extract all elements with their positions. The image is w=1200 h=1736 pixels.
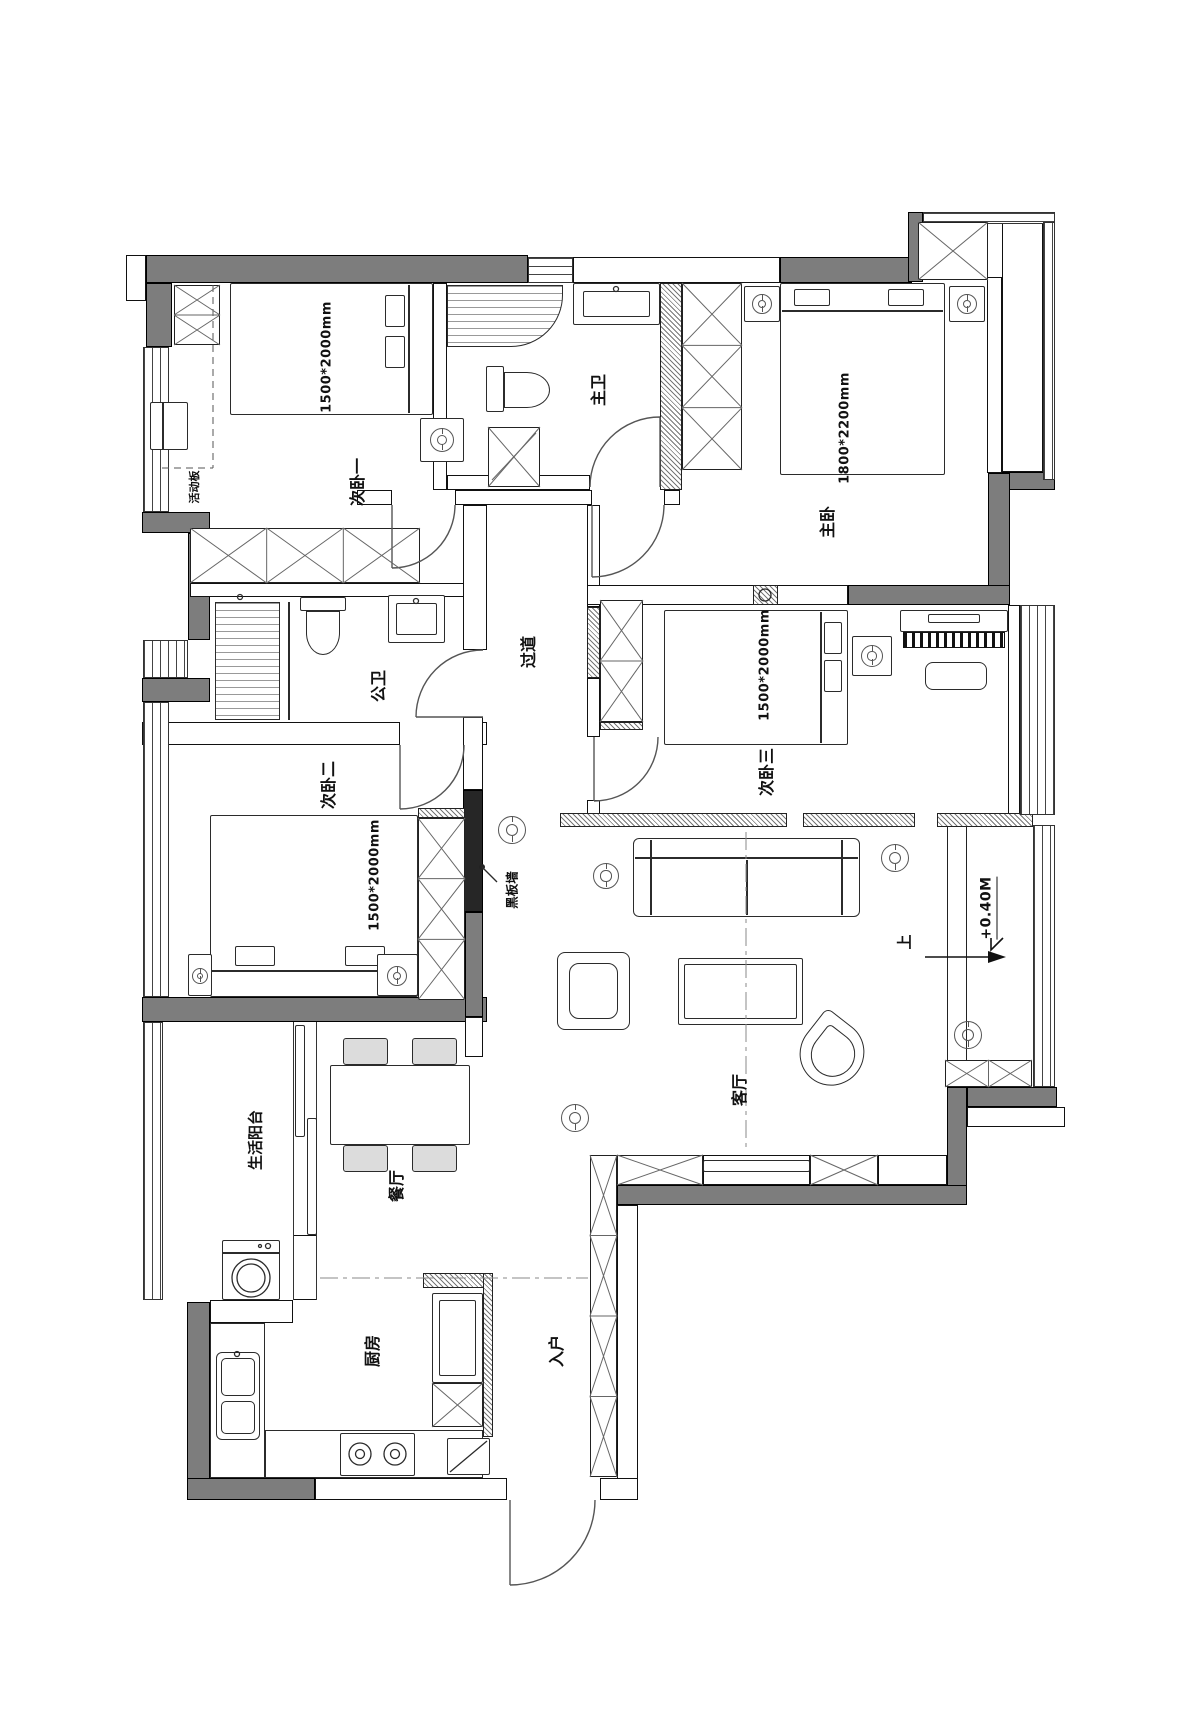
lamp-icon — [387, 966, 407, 986]
shower-area — [215, 602, 280, 720]
wall-segment — [967, 1087, 1057, 1107]
storage-cabinet — [918, 222, 988, 280]
wall-segment — [465, 912, 483, 1017]
pillow — [794, 289, 830, 306]
wall-segment — [210, 1300, 293, 1323]
room-label-public-bathroom: 公卫 — [365, 670, 389, 702]
sofa-arm — [650, 840, 652, 915]
bed-dimension-bedroom1: 1500*2000mm — [320, 301, 335, 413]
wall-segment — [1008, 605, 1020, 815]
room-label-entry: 入户 — [543, 1335, 567, 1367]
wall-segment — [587, 678, 600, 737]
wall-hatched — [660, 283, 682, 490]
window — [143, 640, 188, 678]
wall-segment — [146, 255, 528, 283]
dining-chair — [412, 1038, 457, 1065]
dining-chair — [412, 1145, 457, 1172]
room-label-bedroom3: 次卧三 — [753, 748, 777, 796]
balcony-strip — [1002, 222, 1043, 472]
leader-line — [482, 867, 497, 882]
wall-segment — [987, 277, 1002, 473]
piano-keyboard — [903, 632, 1005, 648]
wardrobe-cabinet — [418, 818, 465, 1000]
storage-cabinet — [945, 1060, 1032, 1087]
shower-glass — [288, 602, 290, 720]
entry-door-swing-arc — [510, 1500, 595, 1585]
wall-segment — [455, 490, 592, 505]
lamp-icon — [192, 968, 208, 984]
wall-hatched — [560, 813, 787, 827]
wall-segment — [142, 678, 210, 702]
bed-dimension-bedroom3: 1500*2000mm — [758, 609, 773, 721]
pillow — [235, 946, 275, 966]
sink-bowl — [221, 1401, 255, 1434]
window — [1033, 825, 1055, 1087]
wall-hatched — [483, 1273, 493, 1437]
wall-hatched — [418, 808, 465, 818]
bed-headboard — [408, 285, 410, 413]
lamp-icon — [957, 294, 977, 314]
pillow — [888, 289, 924, 306]
toilet-tank — [300, 597, 346, 611]
room-label-service-balcony: 生活阳台 — [245, 1110, 266, 1170]
wall-segment — [142, 722, 400, 745]
pillow — [385, 336, 405, 368]
blackboard-wall — [463, 790, 483, 912]
washer-panel — [223, 1252, 279, 1254]
wall-hatched — [423, 1273, 492, 1288]
door-swing-arc — [400, 745, 464, 809]
wall-hatched — [587, 607, 600, 678]
sofa-back — [635, 857, 858, 859]
base-cabinet — [447, 1438, 490, 1475]
door-swing-arc — [594, 737, 658, 801]
tv-cabinet — [617, 1155, 703, 1185]
ceiling-lamp-icon — [498, 816, 526, 844]
annotation-floor-elevation: +0.40M — [979, 876, 998, 939]
floor-plan-canvas: 次卧一 1500*2000mm 主卫 主卧 1800*2200mm 过道 公卫 … — [0, 0, 1200, 1736]
plumbing-shaft — [488, 427, 540, 487]
annotation-stair-up: 上 — [894, 934, 915, 949]
sink-bowl — [221, 1358, 255, 1396]
shoe-cabinet — [590, 1155, 617, 1477]
wall-segment — [617, 1185, 967, 1205]
wardrobe-cabinet — [682, 283, 742, 470]
sink-basin — [583, 291, 650, 317]
wall-hatched — [803, 813, 915, 827]
dining-chair — [343, 1038, 388, 1065]
bed-dimension-bedroom2: 1500*2000mm — [368, 819, 383, 931]
dining-chair — [343, 1145, 388, 1172]
ceiling-lamp-icon — [954, 1021, 982, 1049]
floor-lamp-icon — [593, 863, 619, 889]
washing-machine — [222, 1240, 280, 1300]
sofa-cushion-divide — [746, 860, 748, 915]
wall-segment — [573, 257, 780, 283]
wall-segment — [465, 1017, 483, 1057]
wall-segment — [463, 717, 483, 790]
window-sill — [967, 1107, 1065, 1127]
door-swing-arc — [592, 505, 664, 577]
bed-headboard — [782, 310, 943, 312]
door-swing-arc — [590, 417, 660, 487]
room-label-kitchen: 厨房 — [359, 1335, 383, 1367]
toilet-bowl — [306, 611, 340, 655]
flue-shaft — [753, 585, 778, 605]
wall-segment — [617, 1205, 638, 1500]
wardrobe-cabinet — [174, 285, 220, 345]
dining-table — [330, 1065, 470, 1145]
wall-hatched — [600, 722, 643, 730]
room-label-bedroom1: 次卧一 — [344, 458, 368, 506]
wall-segment — [142, 997, 487, 1022]
bed-headboard — [820, 612, 822, 743]
wardrobe-cabinet — [190, 528, 420, 583]
sofa-arm — [841, 840, 843, 915]
level-mark-icon — [991, 938, 1003, 950]
ceiling-lamp-icon — [561, 1104, 589, 1132]
pillow — [385, 295, 405, 327]
room-label-master-bedroom: 主卧 — [814, 506, 838, 538]
tv-cabinet — [878, 1155, 947, 1185]
wall-hatched — [937, 813, 1033, 827]
sliding-door-leaf — [307, 1118, 317, 1235]
room-label-bedroom2: 次卧二 — [315, 761, 339, 809]
floor-lamp-icon — [881, 844, 909, 872]
wall-segment — [600, 1478, 638, 1500]
fridge-door — [439, 1300, 476, 1376]
window — [528, 257, 573, 283]
sink-basin — [396, 603, 437, 635]
wall-segment — [126, 255, 146, 301]
pillow — [824, 622, 842, 654]
kitchen-tall-cabinet — [432, 1383, 483, 1427]
toilet-tank — [486, 366, 504, 412]
piano-bench — [925, 662, 987, 690]
wall-segment — [187, 1478, 315, 1500]
lamp-icon — [430, 428, 454, 452]
window — [1043, 222, 1055, 480]
lamp-icon — [752, 294, 772, 314]
annotation-movable-panel: 活动板 — [186, 471, 202, 504]
wall-segment — [463, 505, 487, 650]
desk — [150, 402, 188, 450]
gas-stove — [340, 1433, 415, 1476]
bay-window — [1020, 605, 1055, 815]
room-label-dining-room: 餐厅 — [383, 1170, 407, 1202]
door-swing-arc — [416, 650, 483, 717]
wall-segment — [146, 283, 172, 347]
pillow — [824, 660, 842, 692]
wall-segment — [664, 490, 680, 505]
wall-segment — [780, 257, 912, 283]
room-label-living-room: 客厅 — [726, 1074, 750, 1106]
tv-cabinet — [810, 1155, 878, 1185]
annotation-blackboard-wall: 黑板墙 — [502, 871, 521, 909]
bay-window — [143, 702, 169, 997]
wall-segment — [988, 473, 1010, 587]
bed-dimension-master: 1800*2200mm — [838, 372, 853, 484]
wall-segment — [848, 585, 1010, 605]
wall-segment — [315, 1478, 507, 1500]
desk-edge — [162, 402, 164, 450]
tv — [703, 1160, 810, 1172]
toilet-bowl — [504, 372, 550, 408]
wardrobe-cabinet — [600, 600, 643, 722]
coffee-table-top — [684, 964, 797, 1019]
balcony-window — [143, 1022, 163, 1300]
shower-area — [447, 285, 563, 347]
armchair-cushion — [569, 963, 618, 1019]
wall-segment — [187, 1302, 210, 1500]
room-label-hallway: 过道 — [515, 636, 539, 668]
sliding-door-leaf — [295, 1025, 305, 1137]
room-label-master-bathroom: 主卫 — [585, 374, 609, 406]
lamp-icon — [861, 645, 883, 667]
piano-music-rest — [928, 614, 980, 623]
